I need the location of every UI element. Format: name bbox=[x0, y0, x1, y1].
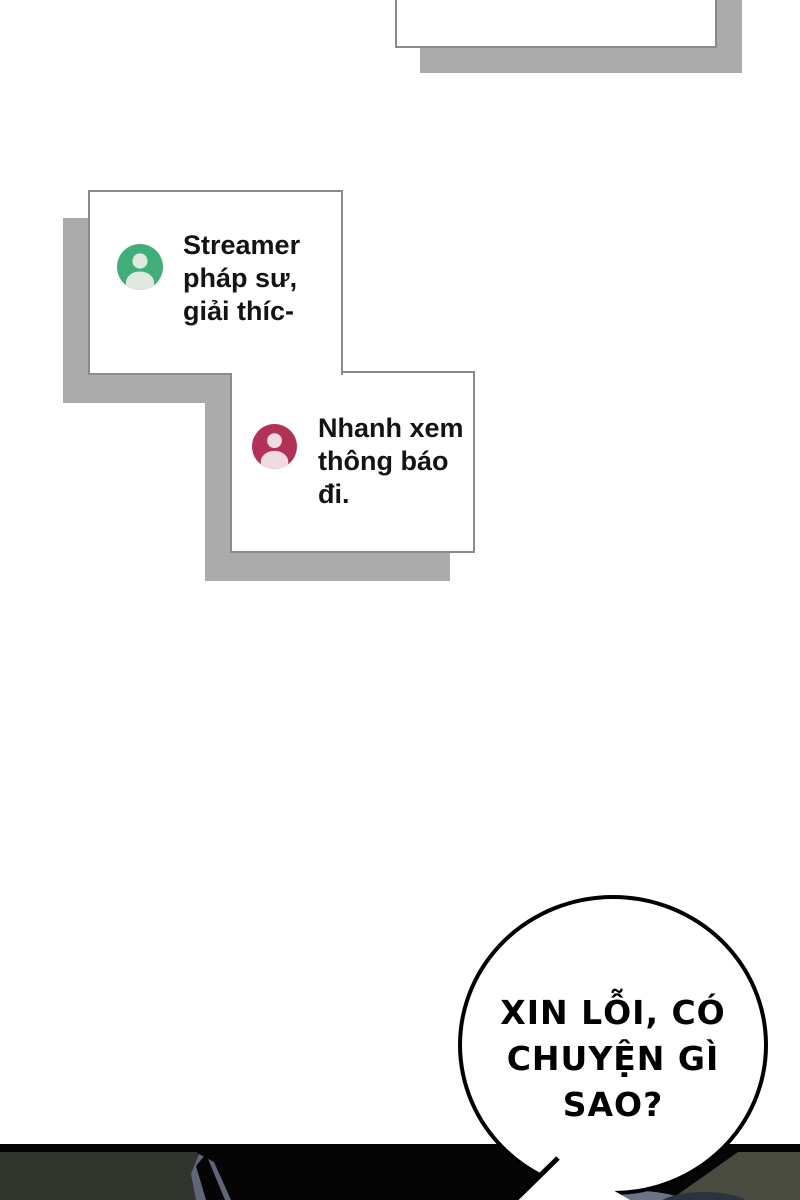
speech-bubble-text: XIN LỖI, CÓ CHUYỆN GÌ SAO? bbox=[463, 990, 763, 1128]
chat-line: Nhanh xem bbox=[318, 412, 464, 445]
bubble-line: XIN LỖI, CÓ bbox=[463, 990, 763, 1036]
bubble-line: CHUYỆN GÌ bbox=[463, 1036, 763, 1082]
chat-message-2-text: Nhanh xem thông báo đi. bbox=[318, 412, 464, 511]
top-panel-box bbox=[395, 0, 717, 48]
comic-page: Streamer pháp sư, giải thíc- Nhanh xem t… bbox=[0, 0, 800, 1200]
chat-line: thông báo bbox=[318, 445, 464, 478]
chat-line: pháp sư, bbox=[183, 262, 300, 295]
chat-line: đi. bbox=[318, 478, 464, 511]
chat-line: Streamer bbox=[183, 229, 300, 262]
scene-wall-left bbox=[0, 1152, 224, 1200]
user-icon bbox=[252, 424, 297, 469]
user-icon bbox=[117, 244, 163, 290]
chat-message-1-text: Streamer pháp sư, giải thíc- bbox=[183, 229, 300, 328]
bubble-line: SAO? bbox=[463, 1082, 763, 1128]
chat-line: giải thíc- bbox=[183, 295, 300, 328]
chat-box-seam bbox=[232, 372, 341, 378]
speech-bubble-tail bbox=[480, 1130, 650, 1200]
